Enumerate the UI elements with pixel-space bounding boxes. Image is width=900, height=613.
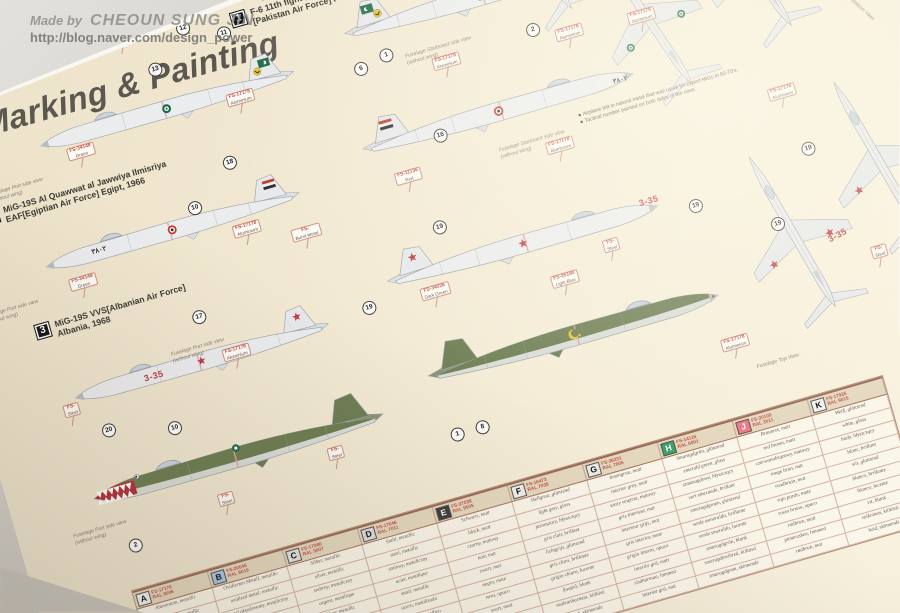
- paint-letter-chip-E: E: [435, 504, 452, 520]
- callout-number: 18: [221, 154, 238, 171]
- photo-of-instruction-sheet: Marking & Painting 1 F-6 11th fighter Sq…: [0, 0, 900, 613]
- paint-code: FS-37038RAL 9005: [451, 499, 475, 515]
- paint-code: FS-36231RAL 7005: [601, 456, 625, 472]
- paint-code: FS-30045RAL 8019: [226, 563, 250, 579]
- paint-ref-tag: FS-17178Aluminium: [720, 333, 750, 353]
- section-2-badge: 2: [0, 207, 1, 227]
- paint-ref-tag: FS-35190Light Blue: [550, 269, 580, 289]
- paint-letter-chip-D: D: [360, 526, 377, 542]
- paint-ref-tag: FS-17178Aluminium: [767, 82, 797, 102]
- paint-code: FS-16473RAL 7035: [526, 477, 550, 493]
- paint-letter-chip-H: H: [660, 440, 677, 456]
- paint-code: FS-14115RAL 6001: [676, 434, 700, 450]
- watermark: Made byCHEOUN SUNG JIN http://blog.naver…: [30, 12, 254, 45]
- callout-number: 1: [449, 426, 466, 443]
- paint-letter-chip-J: J: [735, 418, 752, 434]
- paint-letter-chip-B: B: [210, 569, 227, 585]
- bullet-square-icon: ■: [580, 119, 585, 126]
- callout-number: 2: [127, 537, 144, 554]
- paint-letter-chip-F: F: [510, 483, 527, 499]
- paint-letter-chip-A: A: [135, 590, 152, 606]
- callout-number: 19: [687, 197, 704, 214]
- watermark-url: http://blog.naver.com/design_power: [30, 30, 254, 45]
- section-3-badge: 3: [33, 321, 53, 341]
- paint-code: FS-30109RAL 3011: [751, 413, 775, 429]
- paint-letter-chip-C: C: [285, 547, 302, 563]
- callout-number: 19: [361, 299, 378, 316]
- paint-color-table: AFS-17178RAL 9006BFS-30045RAL 8019CFS-17…: [131, 375, 900, 613]
- callout-number: 20: [100, 422, 117, 439]
- instruction-sheet-paper: Marking & Painting 1 F-6 11th fighter Sq…: [0, 0, 900, 613]
- view-caption: Fuselage Port side view (without wing): [0, 299, 41, 327]
- callout-number: 17: [191, 308, 208, 325]
- paint-code: FS-17178RAL 9006: [151, 585, 175, 601]
- paint-code: FS-17086RAL 9007: [301, 542, 325, 558]
- paint-code: FS-17046RAL 7011: [376, 520, 400, 536]
- paint-letter-chip-G: G: [585, 461, 602, 477]
- callout-number: 10: [166, 419, 183, 436]
- callout-number: 8: [474, 419, 491, 436]
- view-caption: Fuselage Top View: [756, 352, 800, 370]
- paint-letter-chip-K: K: [810, 397, 827, 413]
- paint-code: FS-17925RAL 9010: [826, 391, 850, 407]
